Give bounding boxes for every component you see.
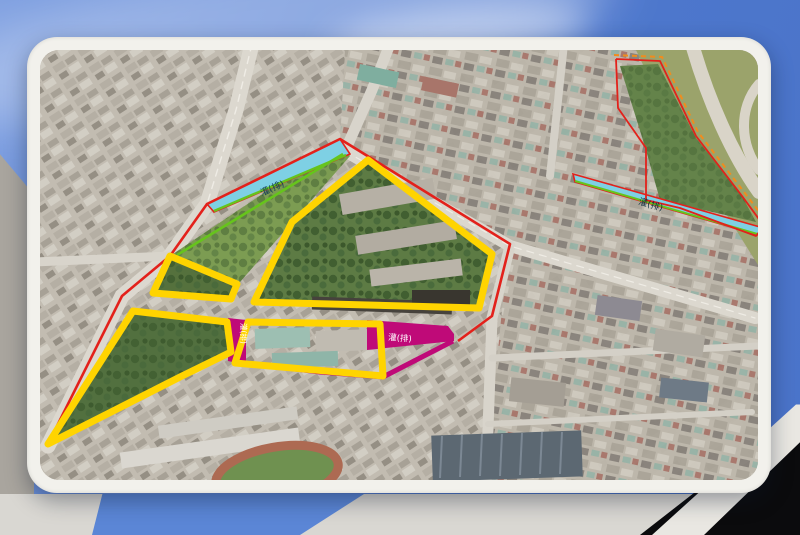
cross-road-west bbox=[40, 256, 170, 262]
photo-of-site-plan-board: { "map": { "labels": { "west_channel": "… bbox=[0, 0, 800, 535]
warehouse-roof bbox=[255, 327, 311, 349]
poster-frame: 灌(排) 灌(排) 灌(排) 灌(排) bbox=[27, 37, 771, 493]
cross-channel-label: 灌(排) bbox=[239, 323, 249, 344]
south-channel-label: 灌(排) bbox=[388, 332, 412, 345]
dark-roof bbox=[412, 290, 470, 305]
site-plan-map: 灌(排) 灌(排) 灌(排) 灌(排) bbox=[40, 50, 758, 480]
solar-roof-building bbox=[431, 430, 583, 480]
map-area: 灌(排) 灌(排) 灌(排) 灌(排) bbox=[40, 50, 758, 480]
